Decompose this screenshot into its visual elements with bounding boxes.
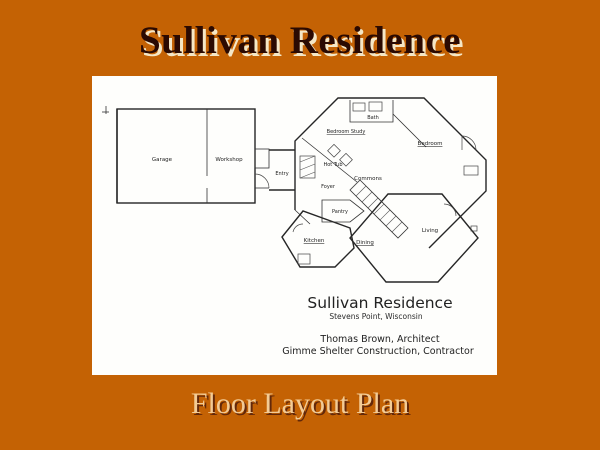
room-label-living: Living — [422, 228, 438, 234]
room-label-foyer: Foyer — [321, 184, 336, 190]
room-label-bath: Bath — [367, 115, 379, 121]
room-labels: Garage Workshop Entry Bath Bedroom Study… — [152, 115, 443, 246]
garage-walls — [102, 106, 269, 203]
floorplan-drawing: Garage Workshop Entry Bath Bedroom Study… — [92, 76, 497, 375]
room-label-bedroom: Bedroom — [418, 141, 443, 147]
plan-heading: Sullivan Residence — [307, 294, 452, 312]
room-label-hot-tub: Hot Tub — [323, 162, 342, 168]
stairs-hatching — [350, 180, 408, 238]
house-kitchen-wing — [282, 200, 364, 267]
room-label-workshop: Workshop — [215, 157, 243, 163]
slide-caption: Floor Layout Plan — [0, 387, 600, 421]
entry-walls — [269, 150, 295, 190]
plan-architect-line: Thomas Brown, Architect — [319, 334, 439, 345]
room-label-entry: Entry — [275, 171, 288, 177]
room-label-commons: Commons — [354, 176, 382, 182]
plan-contractor-line: Gimme Shelter Construction, Contractor — [282, 346, 474, 357]
presentation-slide: Sullivan Residence — [0, 0, 600, 450]
room-label-garage: Garage — [152, 157, 173, 163]
room-label-dining: Dining — [356, 240, 374, 246]
floorplan-image: Garage Workshop Entry Bath Bedroom Study… — [92, 76, 497, 375]
room-label-bedroom-study: Bedroom Study — [327, 129, 366, 135]
room-label-kitchen: Kitchen — [304, 238, 325, 244]
plan-location: Stevens Point, Wisconsin — [329, 312, 423, 321]
house-upper-octagon — [295, 98, 486, 248]
room-label-pantry: Pantry — [332, 209, 348, 215]
plan-caption-block: Sullivan Residence Stevens Point, Wiscon… — [282, 294, 474, 357]
slide-title: Sullivan Residence — [0, 18, 600, 63]
